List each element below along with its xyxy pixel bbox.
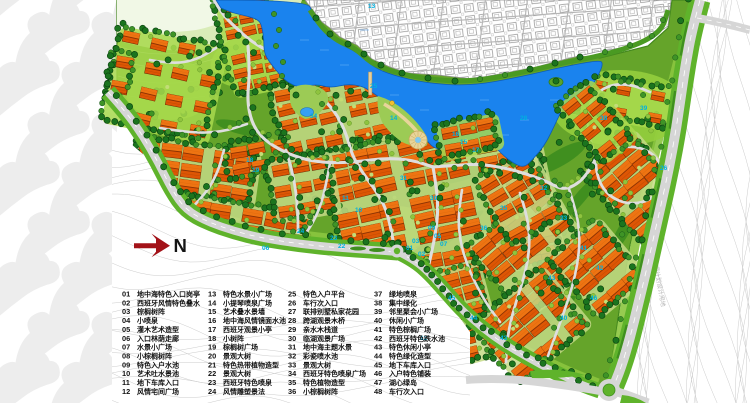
svg-text:湖心绿岛: 湖心绿岛: [389, 378, 417, 387]
svg-text:水景小广场: 水景小广场: [137, 343, 172, 352]
svg-text:35: 35: [500, 205, 508, 212]
svg-text:46: 46: [590, 295, 598, 302]
svg-text:06: 06: [122, 334, 130, 343]
svg-text:入户特色铺装: 入户特色铺装: [388, 369, 431, 378]
svg-text:西班牙观景小亭: 西班牙观景小亭: [223, 325, 272, 334]
svg-text:15: 15: [460, 139, 468, 146]
svg-text:西班牙特色跌水池: 西班牙特色跌水池: [389, 334, 445, 343]
svg-text:07: 07: [122, 343, 130, 352]
svg-text:31: 31: [400, 175, 408, 182]
svg-text:06: 06: [262, 245, 270, 252]
svg-text:11: 11: [342, 195, 349, 202]
svg-text:入口林荫走廊: 入口林荫走廊: [136, 334, 179, 343]
svg-text:05: 05: [434, 233, 442, 240]
svg-text:18: 18: [246, 157, 254, 164]
svg-text:40: 40: [560, 315, 568, 322]
svg-text:03: 03: [412, 238, 420, 245]
svg-text:41: 41: [374, 325, 382, 334]
svg-text:棕榈树阵: 棕榈树阵: [136, 307, 165, 316]
svg-text:43: 43: [548, 275, 556, 282]
svg-text:41: 41: [580, 245, 588, 252]
svg-text:14: 14: [208, 298, 217, 307]
svg-text:西班牙特色喷泉广场: 西班牙特色喷泉广场: [303, 369, 366, 378]
svg-text:39: 39: [640, 105, 648, 112]
svg-text:小棕榈树阵: 小棕榈树阵: [302, 387, 338, 396]
svg-text:临湖观景广场: 临湖观景广场: [303, 334, 345, 343]
svg-text:小喷泉: 小喷泉: [136, 316, 159, 325]
svg-text:01: 01: [406, 245, 414, 252]
svg-text:34: 34: [310, 113, 318, 120]
svg-text:19: 19: [252, 167, 260, 174]
svg-text:18: 18: [208, 334, 216, 343]
svg-text:23: 23: [208, 378, 216, 387]
svg-text:艺术吐水景池: 艺术吐水景池: [137, 369, 179, 378]
svg-text:特色水景小广场: 特色水景小广场: [223, 290, 272, 299]
svg-text:特色植物造型: 特色植物造型: [303, 378, 345, 387]
svg-text:12: 12: [122, 387, 130, 396]
svg-text:45: 45: [374, 360, 382, 369]
svg-text:跨湖观景木桥: 跨湖观景木桥: [303, 316, 346, 325]
svg-text:10: 10: [355, 207, 363, 214]
svg-text:西班牙特色喷泉: 西班牙特色喷泉: [223, 378, 273, 387]
svg-text:33: 33: [560, 215, 568, 222]
svg-text:13: 13: [208, 290, 216, 299]
svg-text:地中海风情镜面水池: 地中海风情镜面水池: [223, 316, 286, 325]
svg-text:08: 08: [122, 351, 130, 360]
svg-text:04: 04: [122, 316, 131, 325]
svg-text:景观大树: 景观大树: [222, 351, 251, 360]
svg-text:17: 17: [472, 147, 480, 154]
svg-text:车行次入口: 车行次入口: [303, 298, 338, 307]
svg-text:44: 44: [374, 351, 383, 360]
svg-text:01: 01: [122, 290, 130, 299]
svg-text:34: 34: [288, 369, 297, 378]
svg-text:32: 32: [288, 351, 296, 360]
svg-text:地下车库入口: 地下车库入口: [137, 378, 179, 387]
svg-text:13: 13: [368, 3, 376, 10]
svg-text:特色入户水池: 特色入户水池: [137, 360, 179, 369]
svg-text:33: 33: [288, 360, 296, 369]
svg-text:车行次入口: 车行次入口: [389, 387, 424, 396]
svg-text:28: 28: [288, 316, 296, 325]
svg-text:绿地喷泉: 绿地喷泉: [389, 290, 418, 299]
svg-text:42: 42: [374, 334, 382, 343]
svg-text:42: 42: [596, 265, 604, 272]
svg-text:43: 43: [500, 335, 508, 342]
svg-text:特色入户平台: 特色入户平台: [303, 290, 345, 299]
svg-text:景观大树: 景观大树: [222, 369, 251, 378]
svg-text:09: 09: [122, 360, 130, 369]
svg-text:特色绿化造型: 特色绿化造型: [389, 351, 431, 360]
svg-text:特色热带植物造型: 特色热带植物造型: [223, 360, 279, 369]
svg-text:风情雕塑景法: 风情雕塑景法: [223, 387, 265, 396]
svg-text:16: 16: [208, 316, 216, 325]
svg-text:20: 20: [208, 351, 216, 360]
svg-text:26: 26: [660, 165, 668, 172]
svg-text:联排别墅私家花园: 联排别墅私家花园: [303, 307, 359, 316]
svg-text:14: 14: [390, 115, 398, 122]
svg-text:39: 39: [374, 307, 382, 316]
svg-text:特色休闲小亭: 特色休闲小亭: [389, 343, 431, 352]
svg-text:25: 25: [370, 83, 378, 90]
svg-text:29: 29: [288, 325, 296, 334]
svg-text:17: 17: [208, 325, 216, 334]
svg-text:小提琴喷泉广场: 小提琴喷泉广场: [222, 298, 272, 307]
svg-text:24: 24: [208, 387, 217, 396]
svg-text:休闲小广场: 休闲小广场: [388, 316, 424, 325]
svg-text:38: 38: [374, 298, 382, 307]
svg-text:36: 36: [288, 387, 296, 396]
svg-text:48: 48: [374, 387, 382, 396]
svg-text:10: 10: [122, 369, 130, 378]
svg-text:46: 46: [374, 369, 382, 378]
svg-text:26: 26: [288, 298, 296, 307]
svg-text:25: 25: [288, 290, 296, 299]
svg-text:24: 24: [297, 228, 305, 235]
svg-text:11: 11: [122, 378, 130, 387]
svg-text:小棕榈树阵: 小棕榈树阵: [136, 351, 172, 360]
svg-text:09: 09: [428, 225, 436, 232]
svg-text:47: 47: [374, 378, 382, 387]
svg-text:艺术叠水景墙: 艺术叠水景墙: [223, 307, 265, 316]
svg-text:02: 02: [418, 251, 426, 258]
svg-text:45: 45: [448, 295, 456, 302]
svg-text:棕榈树广场: 棕榈树广场: [222, 343, 258, 352]
svg-text:28: 28: [520, 115, 528, 122]
svg-text:21: 21: [208, 360, 216, 369]
svg-text:景观大树: 景观大树: [302, 360, 331, 369]
svg-text:灌木艺术造型: 灌木艺术造型: [137, 325, 179, 334]
svg-text:22: 22: [338, 243, 346, 250]
svg-text:40: 40: [374, 316, 382, 325]
svg-text:西班牙风情特色叠水: 西班牙风情特色叠水: [137, 298, 201, 307]
svg-text:19: 19: [208, 343, 216, 352]
svg-text:地下车库入口: 地下车库入口: [389, 360, 431, 369]
svg-text:23: 23: [330, 235, 338, 242]
svg-text:22: 22: [208, 369, 216, 378]
svg-text:地中海主题水景: 地中海主题水景: [303, 343, 352, 352]
svg-text:N: N: [174, 235, 187, 256]
svg-text:27: 27: [288, 307, 296, 316]
svg-text:邻里聚会小广场: 邻里聚会小广场: [388, 307, 438, 316]
svg-text:地中海特色入口岗亭: 地中海特色入口岗亭: [137, 290, 200, 299]
svg-text:43: 43: [374, 343, 382, 352]
svg-text:特色棕榈广场: 特色棕榈广场: [389, 325, 431, 334]
svg-text:31: 31: [288, 343, 296, 352]
svg-text:36: 36: [480, 225, 488, 232]
svg-text:30: 30: [430, 195, 438, 202]
svg-text:亲水木栈道: 亲水木栈道: [303, 325, 338, 334]
svg-text:37: 37: [374, 290, 382, 299]
svg-text:05: 05: [122, 325, 130, 334]
svg-text:30: 30: [288, 334, 296, 343]
svg-text:07: 07: [440, 241, 448, 248]
svg-text:小树阵: 小树阵: [222, 334, 244, 343]
svg-text:风情宅间广场: 风情宅间广场: [137, 387, 179, 396]
svg-text:35: 35: [288, 378, 296, 387]
svg-text:03: 03: [122, 307, 130, 316]
svg-text:彩瓷喷水池: 彩瓷喷水池: [302, 351, 338, 360]
svg-text:集中绿化: 集中绿化: [388, 298, 417, 307]
svg-text:44: 44: [470, 315, 478, 322]
svg-text:16: 16: [452, 131, 460, 138]
svg-text:32: 32: [540, 185, 548, 192]
svg-text:02: 02: [122, 298, 130, 307]
svg-text:38: 38: [600, 115, 608, 122]
svg-text:15: 15: [208, 307, 216, 316]
